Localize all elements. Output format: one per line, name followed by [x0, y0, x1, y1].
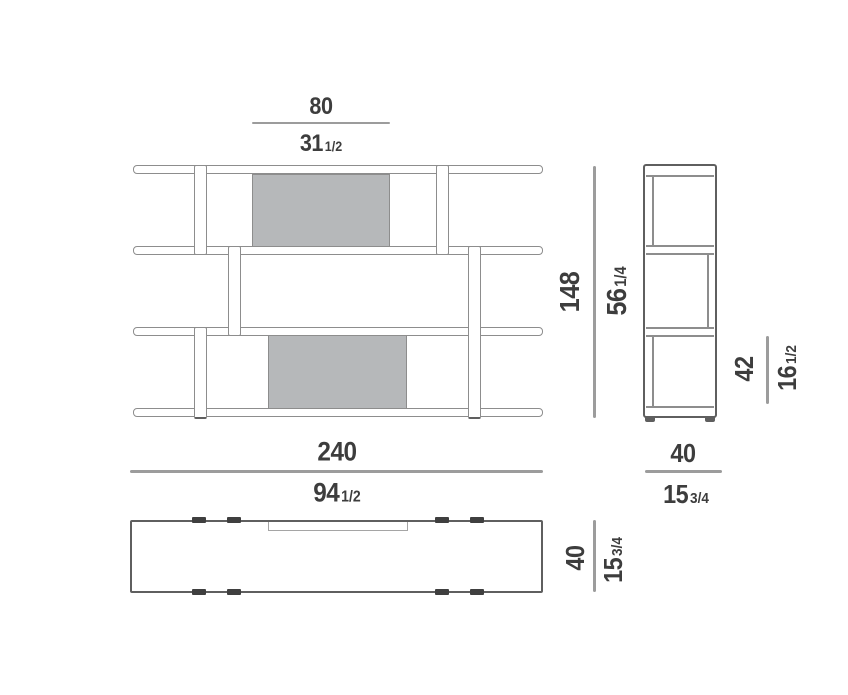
dim-overall-width-inch: 941/2: [313, 480, 361, 507]
dim-panel-width-inch-frac: 1/2: [325, 138, 342, 154]
side-foot-left: [645, 416, 655, 422]
dim-overall-height-cm: 148: [556, 272, 584, 313]
plan-post-tick: [227, 589, 241, 595]
side-shelf2-top-line: [646, 327, 714, 329]
dim-compartment-height-cm: 42: [731, 356, 757, 381]
plan-post-tick: [435, 517, 449, 523]
plan-post-tick: [227, 517, 241, 523]
dim-line-side-depth: [645, 470, 722, 473]
dim-overall-width-cm: 240: [317, 439, 356, 466]
dim-panel-width-inch: 311/2: [300, 132, 342, 156]
side-top-board-line: [646, 175, 714, 177]
front-post-bottom-left: [194, 327, 207, 419]
front-post-top-left: [194, 165, 207, 255]
dim-panel-width-cm: 80: [309, 95, 332, 119]
side-outline: [643, 164, 717, 418]
dim-overall-height-inch: 561/4: [603, 266, 631, 315]
side-foot-right: [705, 416, 715, 422]
plan-post-tick: [470, 517, 484, 523]
dim-panel-width-inch-whole: 31: [300, 130, 323, 157]
dimension-drawing: 80 311/2 148 561/4 42 161/2 240 941/2 40…: [0, 0, 848, 695]
dim-line-compartment-height: [766, 336, 769, 404]
dim-plan-depth-cm: 40: [562, 545, 588, 570]
front-back-panel-bottom: [268, 335, 407, 409]
side-post-line-bottom: [652, 336, 654, 406]
dim-overall-height-inch-frac: 1/4: [612, 266, 630, 286]
side-shelf1-bottom-line: [646, 253, 714, 255]
dim-line-panel-width: [252, 122, 390, 124]
plan-post-tick: [192, 517, 206, 523]
front-post-top-right: [436, 165, 449, 255]
dim-compartment-height-inch-whole: 16: [772, 366, 802, 391]
dim-plan-depth-inch-whole: 15: [598, 558, 628, 583]
plan-post-tick: [192, 589, 206, 595]
dim-side-depth-inch-frac: 3/4: [690, 490, 709, 507]
side-shelf2-bottom-line: [646, 335, 714, 337]
dim-side-depth-cm: 40: [670, 440, 695, 466]
plan-post-tick: [435, 589, 449, 595]
dim-overall-width-inch-whole: 94: [313, 478, 339, 508]
plan-post-tick: [470, 589, 484, 595]
dim-line-overall-height: [593, 166, 596, 418]
front-post-right-lower: [468, 246, 481, 419]
dim-compartment-height-inch-frac: 1/2: [783, 345, 800, 364]
plan-back-panel-notch: [268, 522, 408, 531]
dim-plan-depth-inch-frac: 3/4: [609, 537, 626, 556]
side-shelf1-top-line: [646, 245, 714, 247]
side-post-line-middle: [707, 254, 709, 327]
side-post-line-top: [652, 176, 654, 245]
front-back-panel-top: [252, 174, 390, 247]
dim-line-plan-depth: [593, 520, 596, 592]
dim-compartment-height-inch: 161/2: [774, 345, 800, 391]
dim-side-depth-inch-whole: 15: [663, 479, 688, 509]
dim-line-overall-width: [130, 470, 543, 473]
dim-overall-height-inch-whole: 56: [601, 288, 632, 315]
dim-plan-depth-inch: 153/4: [600, 537, 626, 583]
dim-side-depth-inch: 153/4: [663, 481, 709, 507]
dim-overall-width-inch-frac: 1/2: [341, 489, 361, 506]
side-bottom-board-line: [646, 406, 714, 408]
front-post-middle-left: [228, 246, 241, 336]
